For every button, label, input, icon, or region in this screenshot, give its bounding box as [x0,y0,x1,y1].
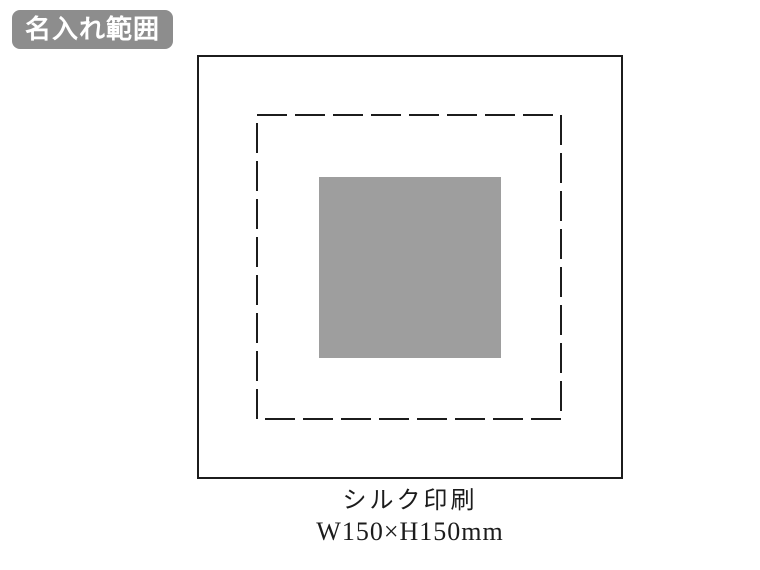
print-area-gray-square [319,177,501,358]
print-size-label: W150×H150mm [197,516,623,548]
caption: シルク印刷 W150×H150mm [197,486,623,548]
imprint-area-badge: 名入れ範囲 [12,10,173,49]
print-method-label: シルク印刷 [197,486,623,516]
